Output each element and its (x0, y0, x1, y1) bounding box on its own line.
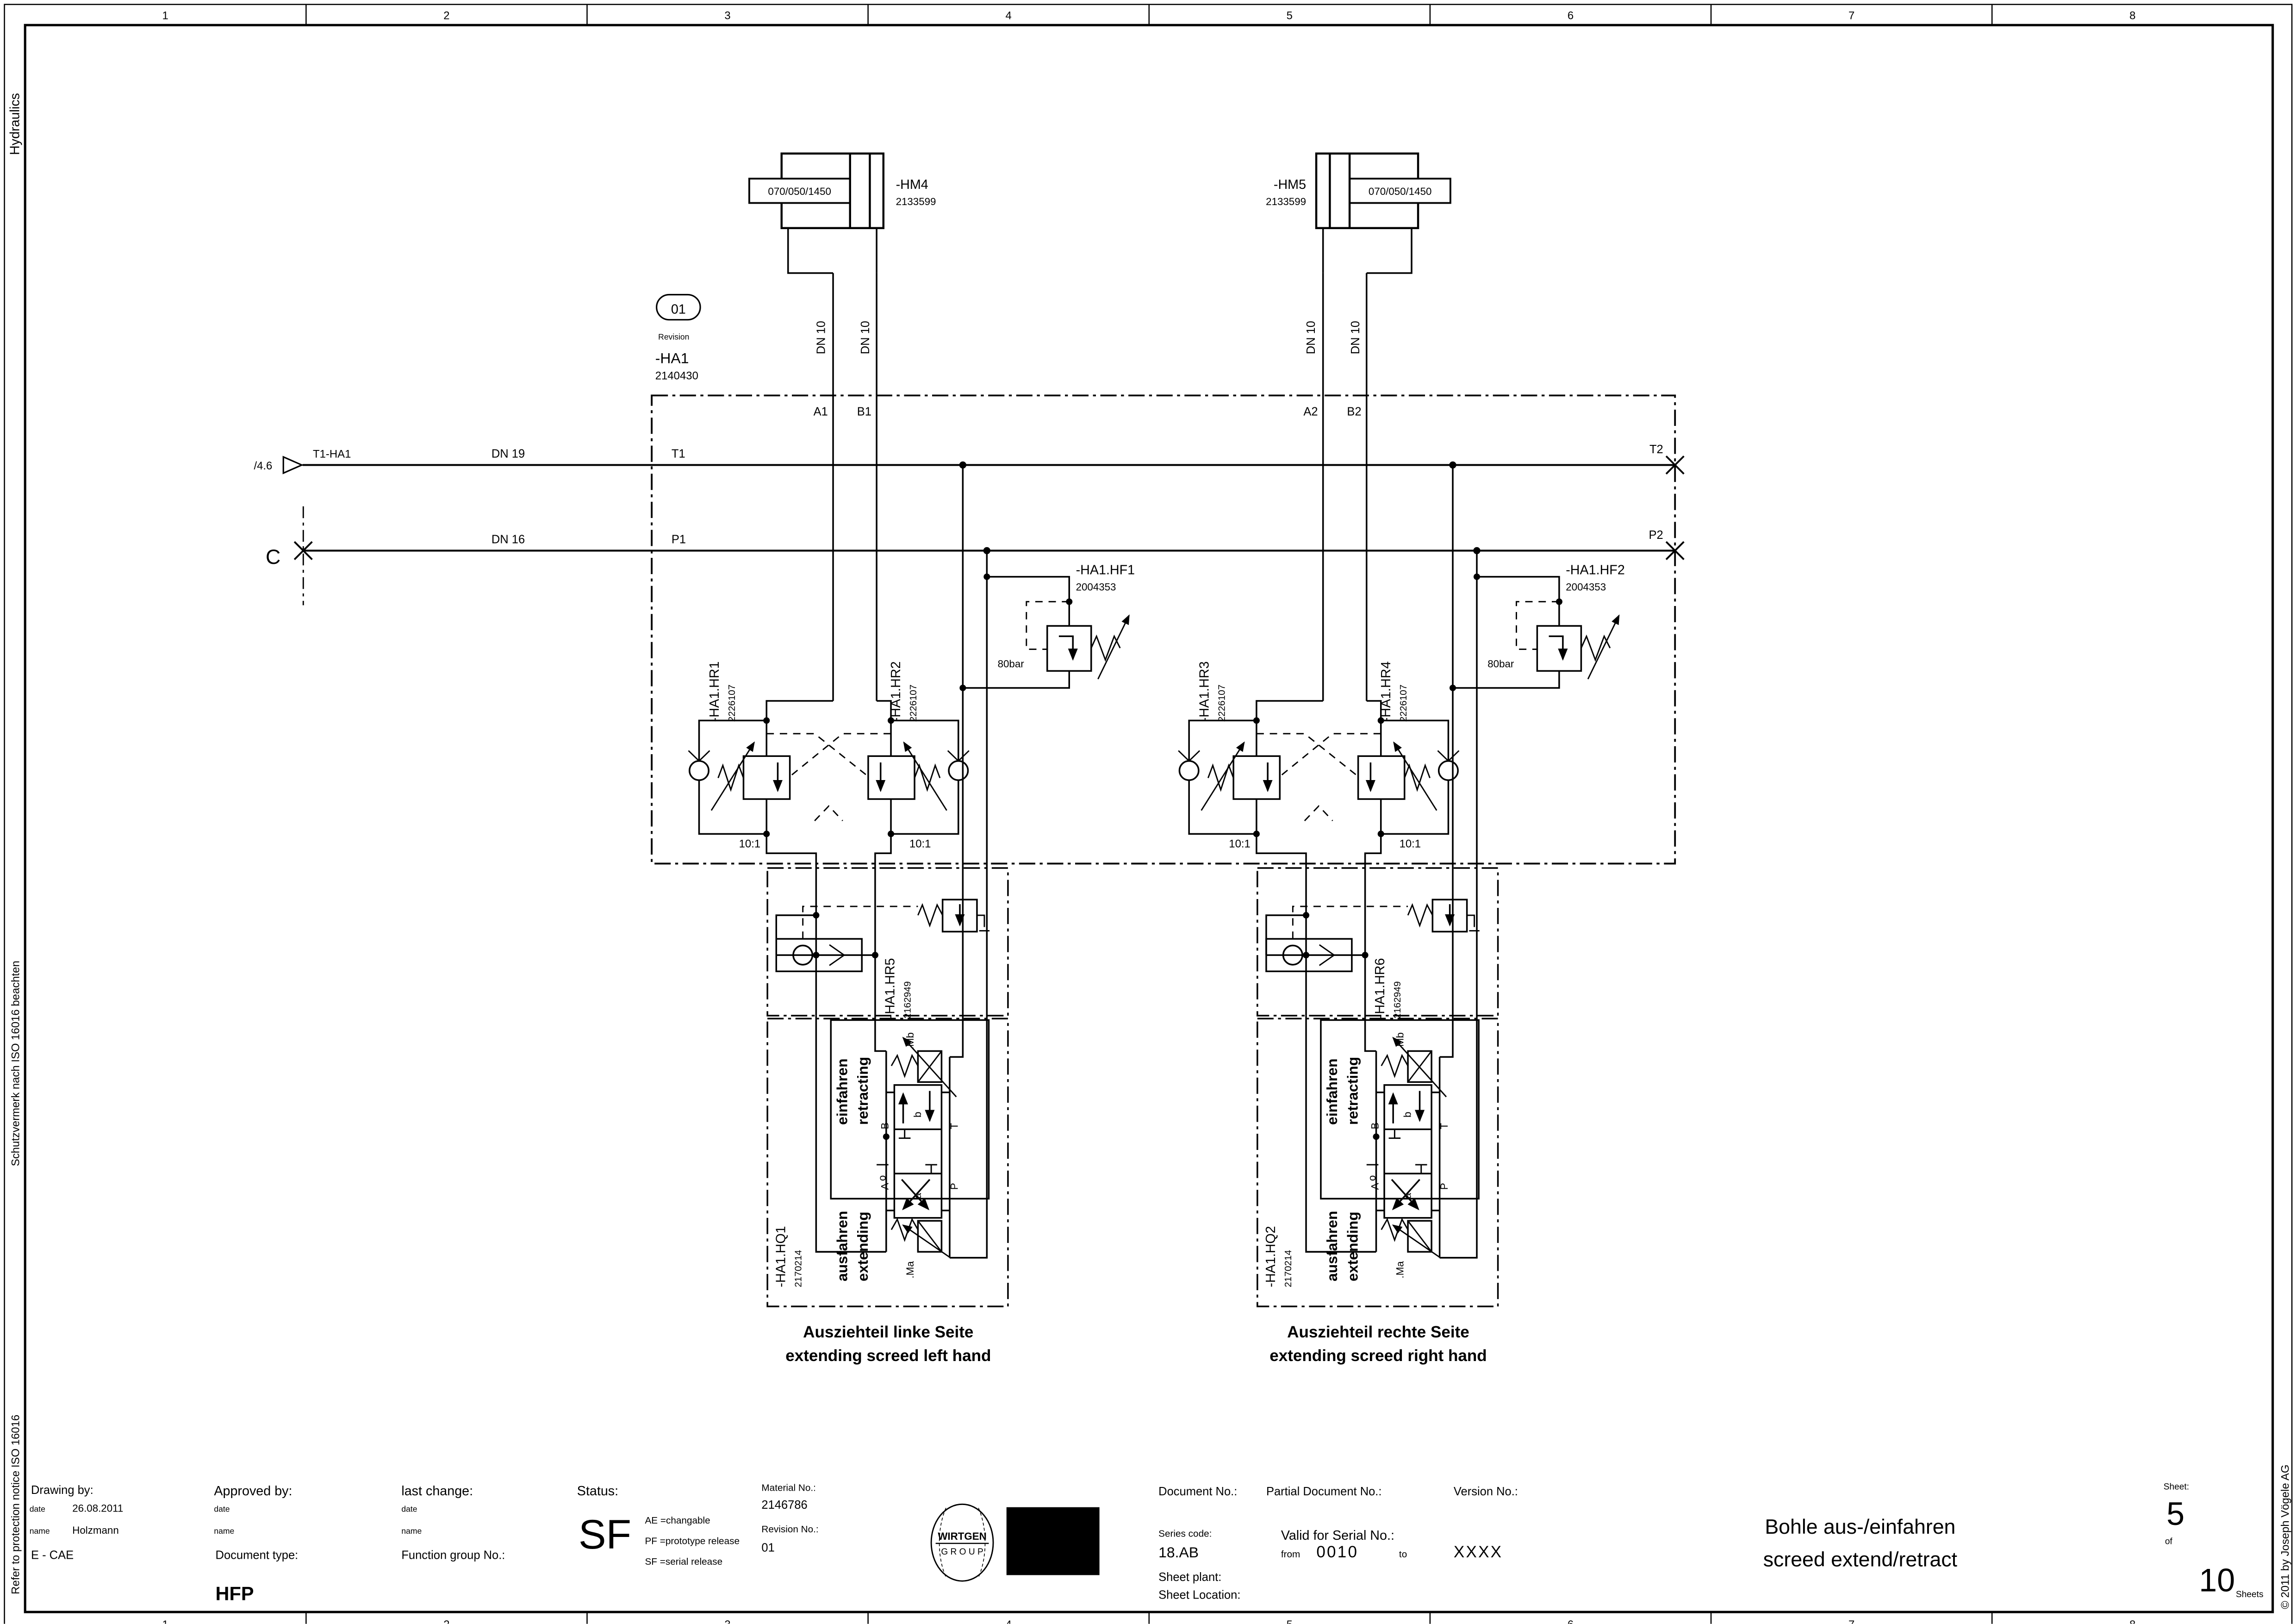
serial-to-label: to (1399, 1550, 1407, 1560)
sheet-of-label: of (2165, 1538, 2172, 1547)
circuit-caption-de: Ausziehteil linke Seite (803, 1323, 973, 1341)
cylinder-part-no: 2133599 (1266, 196, 1306, 207)
version-no-label: Version No.: (1454, 1485, 1518, 1499)
protection-note-de: Schutzvermerk nach ISO 16016 beachten (9, 961, 22, 1166)
function-label-de: ausfahren (1324, 1211, 1340, 1281)
series-code-value: 18.AB (1158, 1546, 1199, 1562)
solenoid-label: .Mb (904, 1032, 916, 1049)
svg-text:7: 7 (1848, 1618, 1854, 1624)
date-label: date (30, 1506, 45, 1515)
cylinder-part-no: 2133599 (896, 196, 936, 207)
circuit-caption-de: Ausziehteil rechte Seite (1287, 1323, 1469, 1341)
revision-caption: Revision (658, 332, 689, 341)
schematic-canvas: 070/050/1450 -HM4 2133599 070/050/1450 -… (0, 0, 2296, 1624)
wirtgen-group-logo: WIRTGEN G R O U P (931, 1504, 993, 1581)
circuit-caption-en: extending screed left hand (785, 1347, 991, 1365)
serial-from-value: 0010 (1316, 1544, 1358, 1562)
solenoid-label: .Mb (1394, 1032, 1406, 1049)
valve-name: -HA1.HF2 (1566, 562, 1625, 577)
junction-dots (763, 462, 1072, 1140)
name-label: name (214, 1528, 234, 1537)
last-change-label: last change: (401, 1484, 473, 1499)
function-label-en: extending (1344, 1212, 1361, 1281)
svg-text:5: 5 (1287, 9, 1293, 22)
status-legend-sf: SF =serial release (645, 1557, 722, 1568)
valid-serial-label: Valid for Serial No.: (1281, 1528, 1394, 1543)
margin-texts: Hydraulics Schutzvermerk nach ISO 16016 … (7, 93, 2291, 1609)
document-no-label: Document No.: (1158, 1485, 1237, 1499)
function-label-de: ausfahren (834, 1211, 850, 1281)
status-legend-pf: PF =prototype release (645, 1537, 740, 1547)
cylinder-name: -HM5 (1274, 177, 1306, 192)
valve-port-label: B (879, 1123, 891, 1130)
valve-name: -HA1.HR2 (889, 662, 903, 722)
logo-area: WIRTGEN G R O U P VÖGELE (931, 1504, 1100, 1581)
valve-port-label: T (948, 1123, 960, 1129)
material-no-value: 2146786 (761, 1499, 807, 1512)
position-label: o (876, 1175, 888, 1181)
pressure-line-size: DN 16 (492, 533, 525, 546)
pilot-ratio: 10:1 (1400, 837, 1421, 850)
sheets-label: Sheets (2236, 1591, 2264, 1600)
drawing-sheet: 070/050/1450 -HM4 2133599 070/050/1450 -… (0, 0, 2296, 1624)
cylinder-size-label: 070/050/1450 (1369, 186, 1432, 197)
function-label-en: extending (854, 1212, 871, 1281)
position-label: a (912, 1193, 923, 1199)
valve-part-no: 2226107 (908, 685, 919, 722)
function-group-label: Function group No.: (401, 1549, 505, 1562)
tank-line-size: DN 19 (492, 448, 525, 461)
valve-name: -HA1.HQ2 (1263, 1226, 1278, 1287)
svg-text:6: 6 (1568, 9, 1574, 22)
title-block-grid (25, 1480, 2272, 1612)
connector-c: C (266, 546, 280, 568)
pilot-ratio: 10:1 (909, 837, 931, 850)
valve-name: -HA1.HR3 (1197, 662, 1212, 722)
svg-text:5: 5 (1287, 1618, 1293, 1624)
hose-size-label: DN 10 (815, 321, 828, 354)
position-label: b (912, 1112, 923, 1117)
function-label-en: retracting (854, 1057, 871, 1125)
serial-from-label: from (1281, 1550, 1300, 1560)
valve-part-no: 2226107 (727, 685, 737, 722)
revision-value: 01 (671, 302, 686, 317)
svg-text:3: 3 (724, 1618, 730, 1624)
port-t2: T2 (1649, 443, 1663, 456)
valve-part-no: 2162949 (1392, 981, 1403, 1019)
port-b1: B1 (857, 406, 871, 418)
port-a1: A1 (814, 406, 828, 418)
port-p2: P2 (1649, 529, 1663, 542)
valve-part-no: 2170214 (1283, 1250, 1294, 1287)
sheet-title-line2: screed extend/retract (1562, 1547, 2159, 1571)
assembly-part-no: 2140430 (655, 370, 698, 382)
svg-text:1: 1 (162, 9, 168, 22)
solenoid-label: .Ma (904, 1261, 916, 1279)
svg-text:WIRTGEN: WIRTGEN (938, 1530, 986, 1542)
sheet-total: 10 (2199, 1562, 2235, 1600)
cylinder-size-label: 070/050/1450 (768, 186, 831, 197)
svg-text:VÖGELE: VÖGELE (1013, 1531, 1093, 1553)
valve-part-no: 2170214 (793, 1250, 803, 1287)
port-t1: T1 (672, 448, 685, 461)
revision-no-value: 01 (761, 1541, 774, 1555)
drawing-name-value: Holzmann (72, 1526, 118, 1537)
svg-text:8: 8 (2129, 1618, 2135, 1624)
voegele-logo: VÖGELE (1007, 1507, 1100, 1575)
series-code-label: Series code: (1158, 1530, 1212, 1540)
valve-name: -HA1.HR6 (1373, 958, 1388, 1019)
partial-document-no-label: Partial Document No.: (1266, 1485, 1382, 1499)
function-label-de: einfahren (1324, 1058, 1340, 1124)
port-b2: B2 (1347, 406, 1361, 418)
copyright-note: © 2011 by Joseph Vögele AG (2279, 1465, 2292, 1609)
hose-size-label: DN 10 (1349, 321, 1362, 354)
svg-text:2: 2 (443, 9, 449, 22)
status-value: SF (579, 1512, 631, 1559)
sheet-location-label: Sheet Location: (1158, 1588, 1240, 1602)
sheet-title-line1: Bohle aus-/einfahren (1562, 1515, 2159, 1538)
svg-text:G R O U P: G R O U P (941, 1547, 983, 1557)
cylinder-name: -HM4 (896, 177, 928, 192)
function-label-de: einfahren (834, 1058, 850, 1124)
svg-text:4: 4 (1006, 9, 1012, 22)
function-label-en: retracting (1344, 1057, 1361, 1125)
name-label: name (401, 1528, 422, 1537)
sheet-plant-label: Sheet plant: (1158, 1571, 1221, 1584)
valve-name: -HA1.HR4 (1379, 662, 1394, 722)
position-label: a (1401, 1193, 1413, 1199)
status-legend-ae: AE =changable (645, 1516, 710, 1526)
tank-line-ref: T1-HA1 (313, 448, 351, 461)
right-circuit-labels: -HA1.HR3 2226107 -HA1.HR4 2226107 10:1 1… (1197, 562, 1625, 1365)
svg-text:6: 6 (1568, 1618, 1574, 1624)
valve-port-label: T (1438, 1123, 1450, 1129)
valve-name: -HA1.HQ1 (773, 1226, 788, 1287)
page-ref: /4.6 (254, 460, 272, 472)
port-p1: P1 (672, 533, 686, 546)
svg-text:3: 3 (724, 9, 730, 22)
svg-text:8: 8 (2129, 9, 2135, 22)
grid-numbers: 1 2 3 4 5 6 7 8 1 2 3 4 5 6 7 8 (162, 9, 2135, 1624)
circuit-shapes (689, 273, 1129, 1306)
name-label: name (30, 1528, 50, 1537)
svg-text:2: 2 (443, 1618, 449, 1624)
pressure-setting: 80bar (1487, 658, 1514, 669)
valve-name: -HA1.HR1 (707, 662, 722, 722)
status-label: Status: (577, 1484, 618, 1499)
svg-text:4: 4 (1006, 1618, 1012, 1624)
sheet-number: 5 (2166, 1495, 2184, 1534)
valve-port-label: A (879, 1183, 891, 1190)
valve-name: -HA1.HR5 (883, 958, 897, 1019)
discipline-label: Hydraulics (7, 93, 22, 155)
pressure-line (294, 506, 1684, 606)
pilot-ratio: 10:1 (1229, 837, 1251, 850)
approved-by-label: Approved by: (214, 1484, 292, 1499)
assembly-name: -HA1 (655, 350, 689, 366)
protection-note-en: Refer to protection notice ISO 16016 (9, 1415, 22, 1594)
date-label: date (214, 1506, 230, 1515)
valve-part-no: 2004353 (1076, 581, 1116, 593)
sheet-label: Sheet: (2164, 1484, 2189, 1493)
svg-text:7: 7 (1848, 9, 1854, 22)
valve-port-label: A (1369, 1183, 1381, 1190)
hose-size-label: DN 10 (1305, 321, 1318, 354)
port-a2: A2 (1303, 406, 1318, 418)
material-no-label: Material No.: (761, 1484, 816, 1494)
valve-part-no: 2162949 (902, 981, 913, 1019)
pilot-ratio: 10:1 (739, 837, 761, 850)
revision-no-label: Revision No.: (761, 1525, 818, 1535)
date-label: date (401, 1506, 417, 1515)
position-label: b (1401, 1112, 1413, 1117)
drawing-date-value: 26.08.2011 (72, 1504, 123, 1514)
valve-port-label: B (1369, 1123, 1381, 1130)
grid-ticks (306, 5, 1992, 1624)
cylinder-hm5 (1316, 154, 1450, 273)
sheet-frame (5, 5, 2292, 1624)
left-circuit-labels: -HA1.HR1 2226107 -HA1.HR2 2226107 10:1 1… (707, 562, 1135, 1365)
schematic-labels: 070/050/1450 -HM4 2133599 070/050/1450 -… (7, 9, 2291, 1624)
valve-part-no: 2226107 (1217, 685, 1227, 722)
solenoid-label: .Ma (1394, 1261, 1406, 1279)
position-label: o (1366, 1175, 1378, 1181)
valve-part-no: 2004353 (1566, 581, 1606, 593)
hose-size-label: DN 10 (859, 321, 872, 354)
valve-name: -HA1.HF1 (1076, 562, 1135, 577)
document-type-value: HFP (216, 1582, 254, 1605)
svg-text:1: 1 (162, 1618, 168, 1624)
serial-to-value: XXXX (1454, 1544, 1503, 1562)
valve-part-no: 2226107 (1398, 685, 1409, 722)
pressure-setting: 80bar (998, 658, 1025, 669)
valve-port-label: P (948, 1183, 960, 1190)
document-type-label: Document type: (216, 1549, 299, 1562)
valve-port-label: P (1438, 1183, 1450, 1190)
drawing-by-label: Drawing by: (31, 1484, 93, 1497)
circuit-caption-en: extending screed right hand (1269, 1347, 1487, 1365)
cylinder-hm4 (749, 154, 884, 273)
org-label: E - CAE (31, 1549, 74, 1562)
